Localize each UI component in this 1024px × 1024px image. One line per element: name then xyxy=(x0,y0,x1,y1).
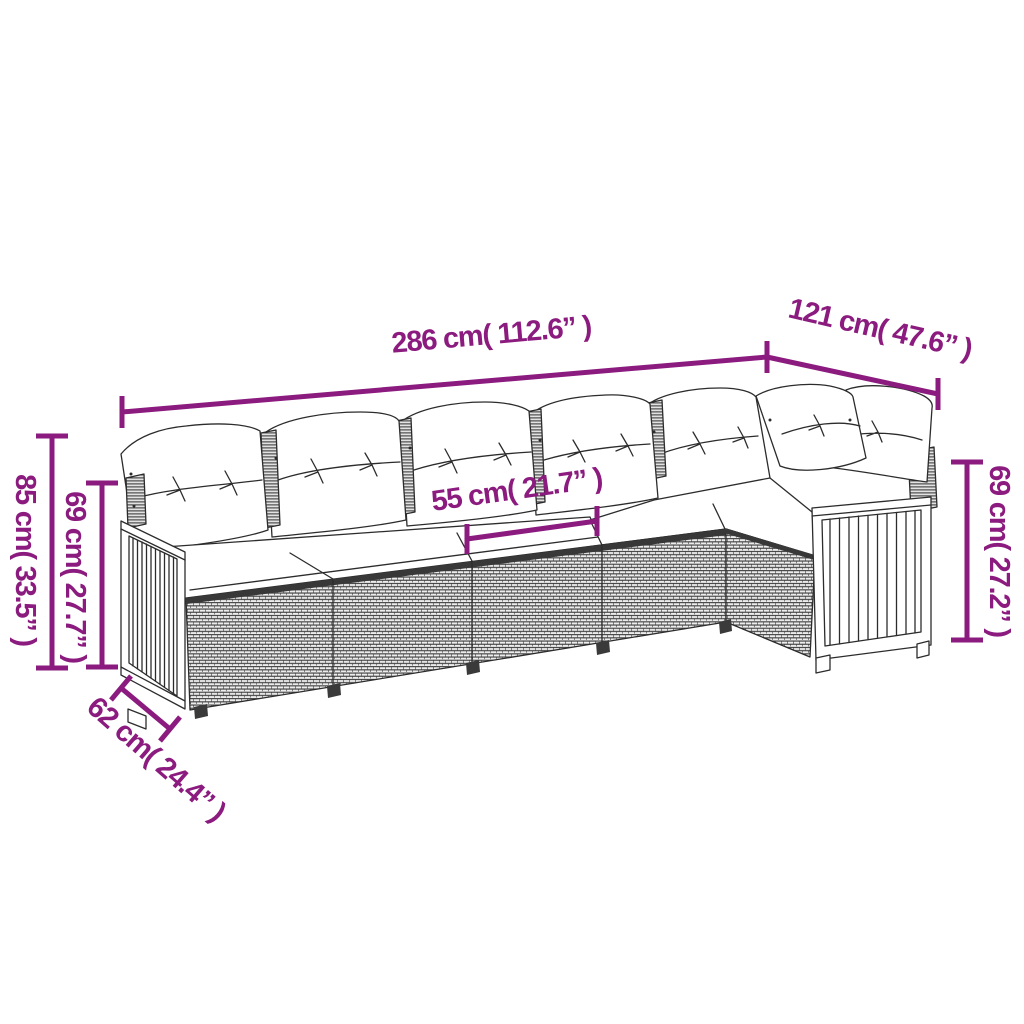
dimension-line-backrest-height-right xyxy=(951,462,983,640)
label-return-width: 121 cm( 47.6” ) xyxy=(785,293,975,366)
diagram-svg: 286 cm( 112.6” ) 121 cm( 47.6” ) 85 cm( … xyxy=(0,0,1024,1024)
label-backrest-height-right: 69 cm( 27.2” ) xyxy=(983,465,1015,637)
sofa-drawing xyxy=(121,384,937,729)
back-pillow xyxy=(756,384,866,470)
wicker-post-left xyxy=(126,474,146,528)
panel-foot xyxy=(816,655,830,673)
product-dimension-diagram: 286 cm( 112.6” ) 121 cm( 47.6” ) 85 cm( … xyxy=(0,0,1024,1024)
arm-frame-outer xyxy=(121,521,185,709)
label-seat-depth: 62 cm( 24.4” ) xyxy=(81,691,232,828)
label-overall-width: 286 cm( 112.6” ) xyxy=(390,310,593,359)
right-side-panel xyxy=(812,497,931,673)
panel-foot xyxy=(917,641,929,658)
back-pillow xyxy=(266,412,406,537)
label-backrest-height-left: 69 cm( 27.7” ) xyxy=(59,491,91,663)
label-overall-height: 85 cm( 33.5” ) xyxy=(9,474,41,646)
